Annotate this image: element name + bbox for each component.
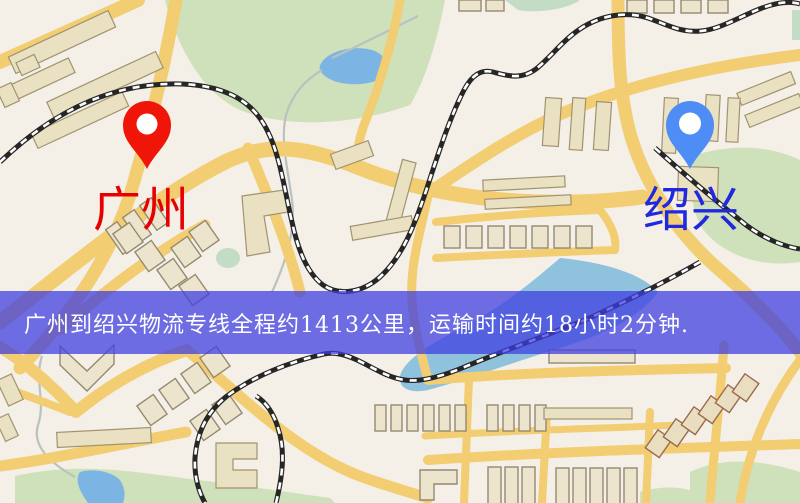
origin-label: 广州 [93, 182, 189, 238]
route-info-text: 广州到绍兴物流专线全程约1413公里，运输时间约18小时2分钟. [0, 307, 689, 339]
map-image: 广州 绍兴 [0, 0, 800, 503]
route-info-banner: 广州到绍兴物流专线全程约1413公里，运输时间约18小时2分钟. [0, 291, 800, 354]
origin-pin-hole [137, 114, 158, 135]
logistics-route-map-page: 广州 绍兴 广州到绍兴物流专线全程约1413公里，运输时间约18小时2分钟. [0, 0, 800, 503]
destination-pin-hole [679, 113, 701, 135]
destination-label: 绍兴 [643, 182, 739, 238]
